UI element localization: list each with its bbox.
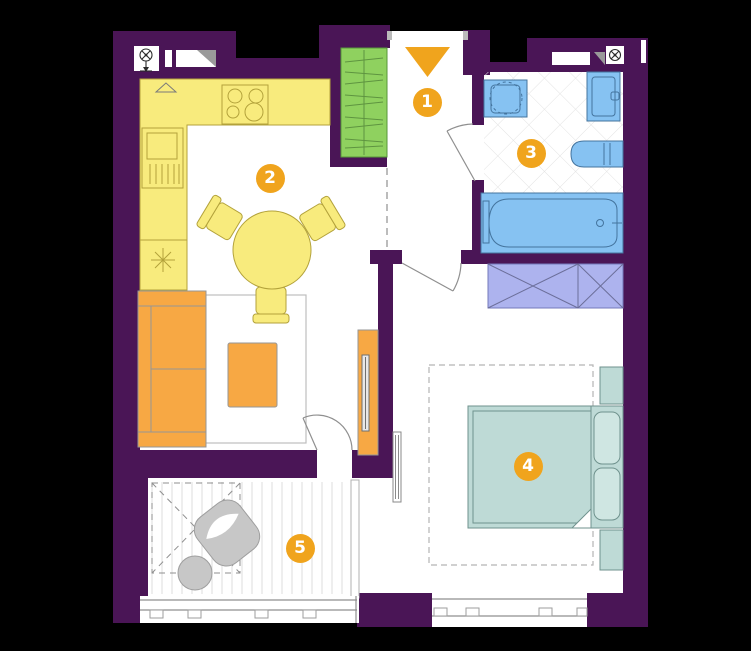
bathtub-icon bbox=[481, 193, 623, 253]
bedroom-window bbox=[432, 593, 587, 627]
dining-chair bbox=[253, 287, 289, 323]
ventilation-fan-icon bbox=[610, 50, 621, 61]
room-badge-bathroom: 3 bbox=[517, 139, 546, 168]
washing-machine-icon bbox=[484, 80, 527, 117]
coffee-table bbox=[228, 343, 277, 407]
radiator-icon bbox=[393, 432, 401, 502]
nightstand bbox=[600, 367, 623, 404]
built-in-closet bbox=[488, 264, 623, 308]
floor-plan: 1 2 3 4 5 bbox=[0, 0, 751, 651]
floor-plan-drawing bbox=[0, 0, 751, 651]
sofa bbox=[138, 291, 206, 447]
room-badge-hallway: 1 bbox=[413, 88, 442, 117]
bed bbox=[468, 406, 623, 528]
nightstand bbox=[600, 530, 623, 570]
tv-stand bbox=[358, 330, 378, 455]
balcony-side-table bbox=[178, 556, 212, 590]
stove-icon bbox=[222, 85, 268, 124]
room-badge-balcony: 5 bbox=[286, 534, 315, 563]
pillow bbox=[594, 412, 620, 464]
bathroom-sink-icon bbox=[587, 72, 620, 121]
dining-table bbox=[233, 211, 311, 289]
room-badge-kitchen-living: 2 bbox=[256, 164, 285, 193]
room-badge-bedroom: 4 bbox=[514, 452, 543, 481]
pillow bbox=[594, 468, 620, 520]
water-heater-icon bbox=[571, 141, 623, 167]
entry-wardrobe bbox=[341, 48, 387, 157]
